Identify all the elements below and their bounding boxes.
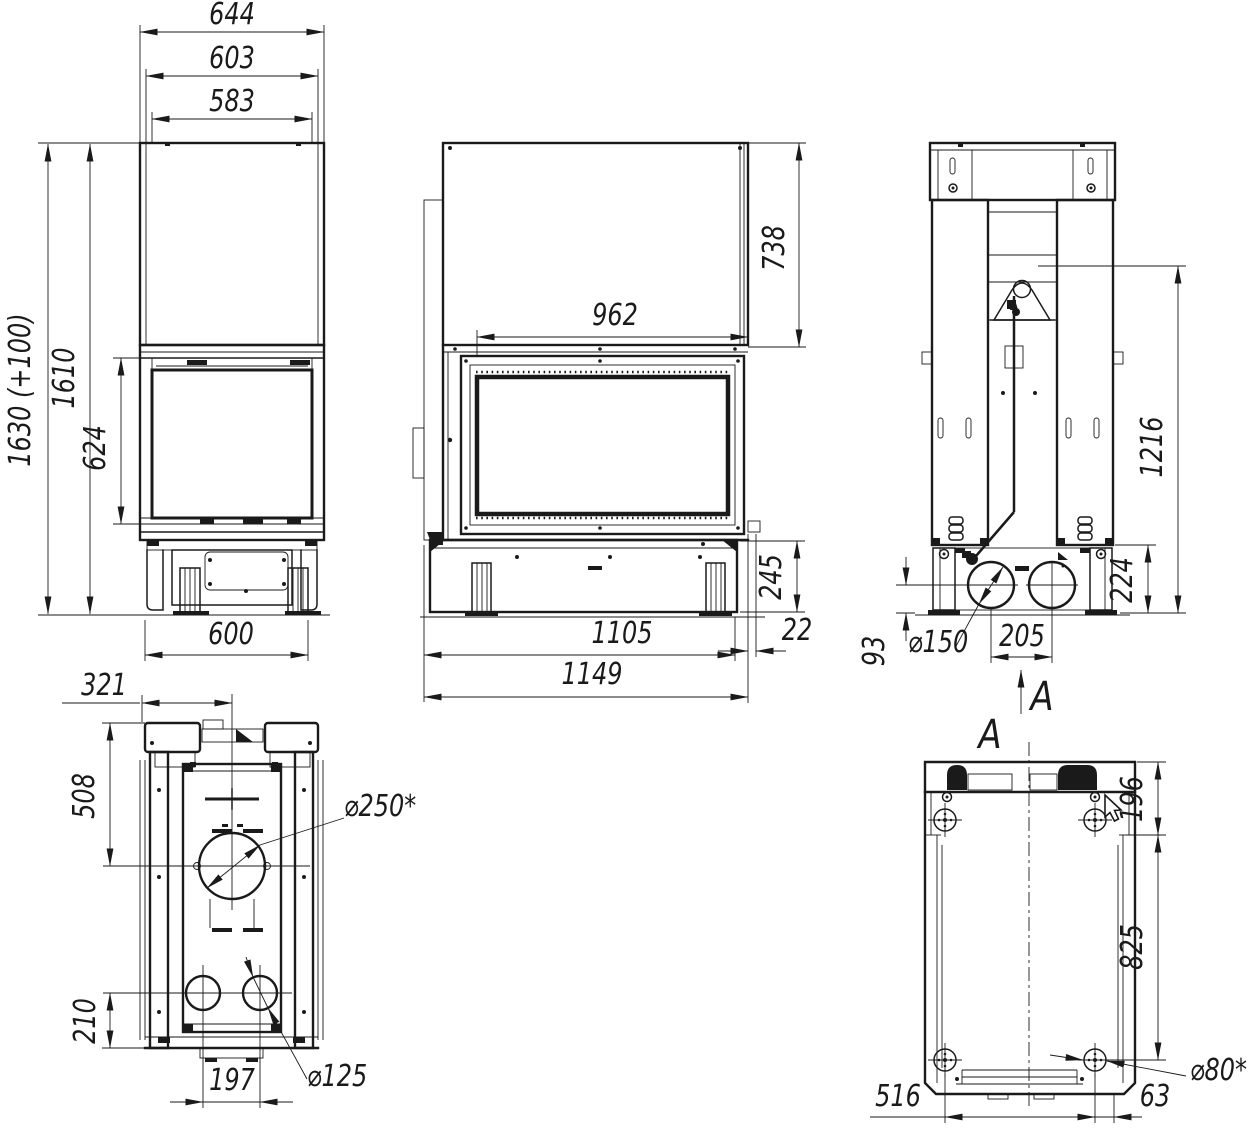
dim-205: 205 bbox=[999, 619, 1045, 653]
section-letter-a2: A bbox=[977, 711, 1002, 757]
front-base bbox=[430, 540, 737, 612]
dim-962: 962 bbox=[592, 298, 638, 332]
rear-pulley-bracket bbox=[994, 283, 1050, 320]
dim-321: 321 bbox=[81, 668, 127, 702]
section-cut-marker: A A bbox=[977, 670, 1054, 758]
dim-603: 603 bbox=[209, 41, 255, 75]
dim-1216: 1216 bbox=[1135, 416, 1169, 477]
drawing-canvas: 644 603 583 1630 (+100) 1610 624 bbox=[0, 0, 1255, 1129]
technical-drawing-sheet: 644 603 583 1630 (+100) 1610 624 bbox=[0, 0, 1255, 1129]
side-hood bbox=[140, 143, 324, 345]
bottom-section-view: 196 825 ⌀80* 516 63 bbox=[870, 742, 1247, 1123]
dim-1149: 1149 bbox=[561, 657, 622, 691]
side-view: 644 603 583 1630 (+100) 1610 624 bbox=[3, 0, 330, 661]
top-view: 321 508 ⌀250* 210 197 ⌀125 bbox=[62, 668, 416, 1108]
side-firebox bbox=[140, 345, 324, 540]
dim-224: 224 bbox=[1105, 557, 1139, 603]
side-glass bbox=[152, 370, 312, 518]
dim-600: 600 bbox=[208, 617, 254, 651]
dim-210: 210 bbox=[68, 998, 102, 1044]
dim-516: 516 bbox=[875, 1079, 921, 1113]
dim-22: 22 bbox=[782, 613, 813, 647]
top-left-block bbox=[145, 723, 200, 752]
front-view: 962 738 245 2 bbox=[413, 143, 812, 703]
top-right-block bbox=[265, 723, 318, 752]
bottom-outline bbox=[925, 762, 1135, 1094]
dim-1630: 1630 (+100) bbox=[3, 313, 37, 466]
wheel-bottom-left bbox=[928, 1043, 962, 1077]
dim-1105: 1105 bbox=[591, 616, 652, 650]
dim-63: 63 bbox=[1140, 1079, 1171, 1113]
dim-196: 196 bbox=[1115, 776, 1149, 822]
dim-644: 644 bbox=[209, 0, 255, 32]
dim-508: 508 bbox=[67, 773, 101, 819]
side-access-panel bbox=[205, 552, 288, 590]
rear-springs bbox=[949, 517, 1092, 540]
front-side-panel bbox=[424, 200, 443, 540]
dim-738: 738 bbox=[757, 225, 791, 271]
dim-583: 583 bbox=[209, 84, 255, 118]
section-letter-a1: A bbox=[1029, 673, 1054, 719]
rear-view: ⌀150 1216 224 93 205 bbox=[857, 143, 1186, 666]
wheel-bottom-right bbox=[1078, 1043, 1112, 1077]
dim-93: 93 bbox=[857, 636, 891, 667]
dim-624: 624 bbox=[78, 425, 112, 471]
dim-125: ⌀125 bbox=[307, 1059, 367, 1093]
rear-left-panel bbox=[932, 200, 988, 545]
dim-250: ⌀250* bbox=[344, 789, 416, 823]
dim-825: 825 bbox=[1115, 924, 1149, 970]
front-glass bbox=[477, 377, 728, 514]
dim-197: 197 bbox=[209, 1063, 255, 1097]
dim-150: ⌀150 bbox=[908, 625, 968, 659]
dim-80: ⌀80* bbox=[1190, 1053, 1247, 1087]
rear-right-panel bbox=[1057, 200, 1113, 545]
wheel-top-left bbox=[928, 803, 962, 837]
front-door-frame bbox=[461, 356, 744, 534]
rear-top-frame bbox=[930, 143, 1115, 200]
bottom-wheels bbox=[928, 803, 1112, 1077]
dim-245: 245 bbox=[754, 554, 788, 600]
dim-1610: 1610 bbox=[47, 347, 81, 408]
